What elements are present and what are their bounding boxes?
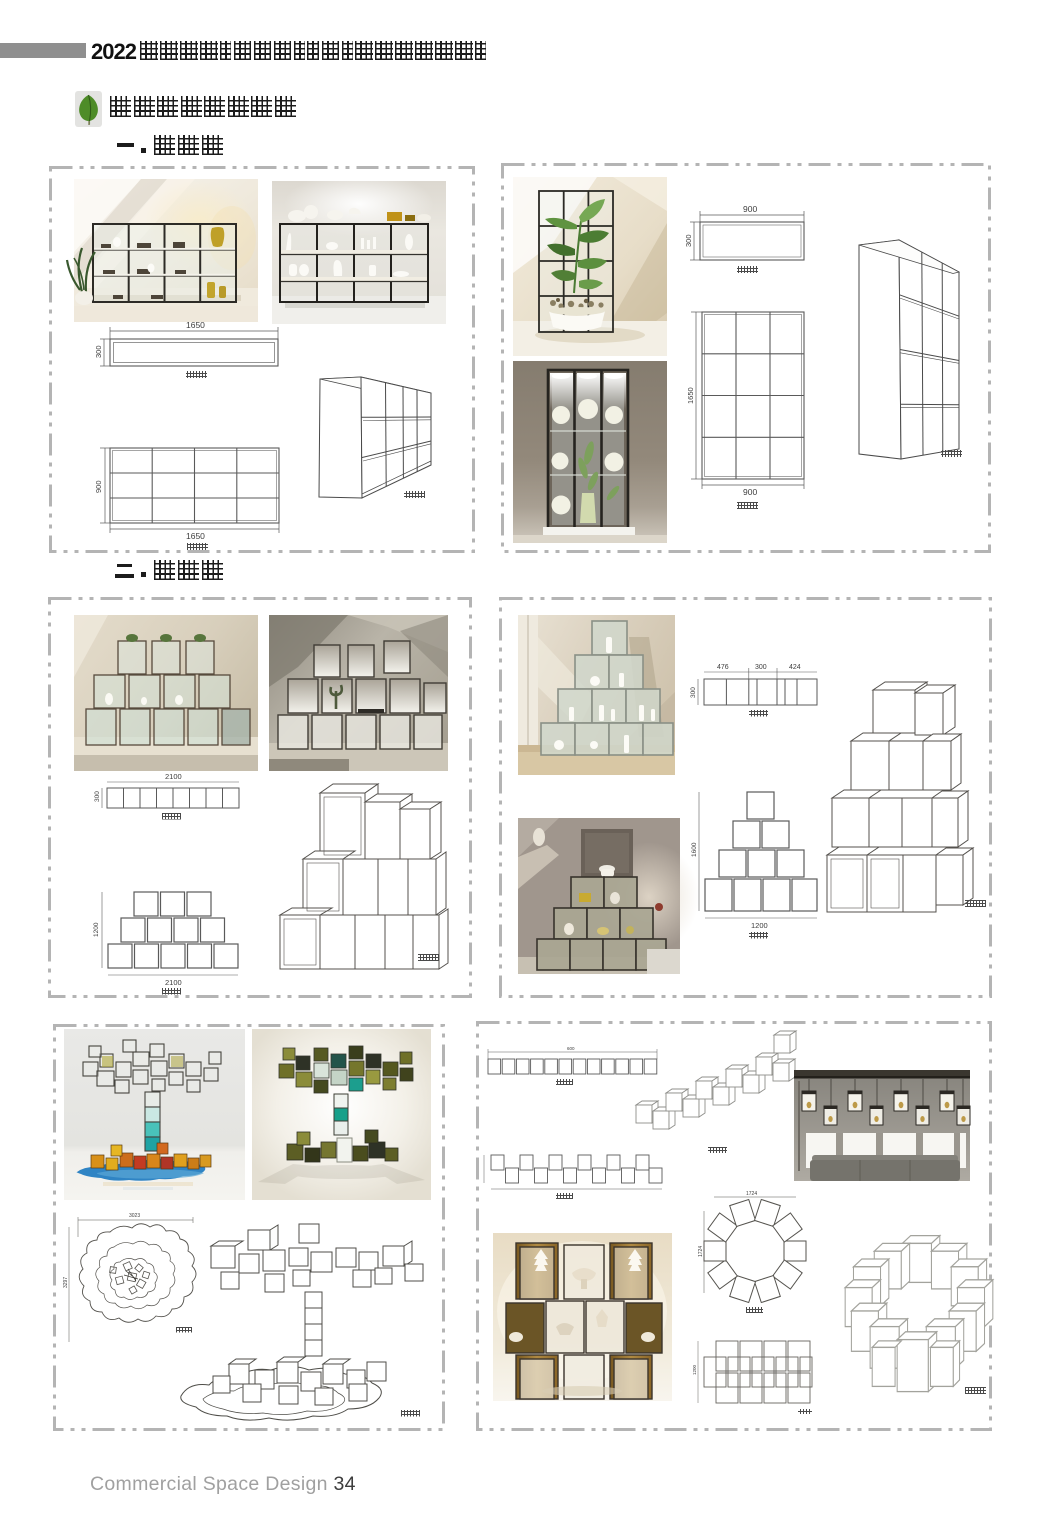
svg-text:424: 424 (789, 664, 801, 671)
svg-text:3023: 3023 (129, 1213, 140, 1219)
svg-text:900: 900 (743, 487, 757, 497)
svg-text:476: 476 (717, 664, 729, 671)
svg-text:1650: 1650 (186, 531, 205, 541)
svg-text:300: 300 (755, 664, 767, 671)
svg-text:300: 300 (690, 687, 697, 698)
svg-text:1724: 1724 (698, 1246, 704, 1257)
svg-text:1650: 1650 (186, 320, 205, 330)
svg-text:2100: 2100 (165, 978, 182, 987)
svg-text:1200: 1200 (692, 1364, 697, 1375)
svg-text:900: 900 (743, 204, 757, 214)
svg-text:300: 300 (94, 345, 103, 358)
svg-text:1200: 1200 (93, 922, 100, 937)
svg-text:600: 600 (567, 1046, 575, 1051)
svg-text:1600: 1600 (691, 842, 698, 857)
svg-text:3297: 3297 (63, 1277, 69, 1288)
svg-text:1724: 1724 (746, 1191, 757, 1197)
svg-text:900: 900 (94, 480, 103, 493)
svg-text:300: 300 (94, 791, 101, 802)
svg-text:1650: 1650 (686, 387, 695, 404)
svg-text:1200: 1200 (751, 921, 768, 930)
svg-text:2100: 2100 (165, 772, 182, 781)
svg-text:300: 300 (684, 234, 693, 247)
